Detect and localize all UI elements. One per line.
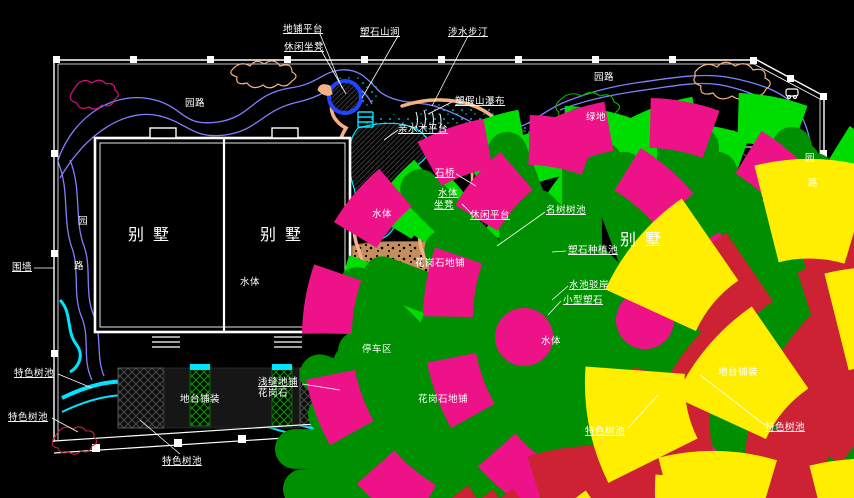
label-leisure-platform: 休闲平台	[470, 209, 510, 221]
label-paving-platform: 地铺平台	[283, 23, 323, 35]
rock-outlines-part	[70, 80, 118, 109]
boundary-markers-part	[750, 57, 757, 64]
boundary-markers-part	[438, 56, 445, 63]
label-water-body-pond: 水体	[372, 208, 392, 220]
label-joint-paving: 浅缝地铺	[258, 376, 298, 388]
label-path-vertical-right-2: 路	[808, 177, 818, 189]
buildings-part	[272, 128, 298, 138]
label-famous-tree-pool: 名树树池	[546, 204, 586, 216]
boundary-markers-part	[361, 56, 368, 63]
label-granite: 花岗石	[258, 387, 288, 399]
label-water-body-right: 水体	[541, 335, 561, 347]
label-pool-revetment: 水池驳岸	[569, 279, 609, 291]
car-symbol-part	[788, 96, 791, 99]
villa-label-1: 别墅	[128, 225, 178, 244]
label-feature-tree-pool-2: 特色树池	[8, 411, 48, 423]
label-green-space: 绿地	[586, 111, 606, 123]
label-feature-tree-pool-5: 特色树池	[765, 421, 805, 433]
boundary-markers-part	[51, 250, 58, 257]
boundary-markers-part	[592, 56, 599, 63]
paved-areas-part	[118, 368, 164, 428]
label-small-rock: 小型塑石	[563, 295, 603, 306]
label-path-vertical-left-1: 园	[78, 216, 88, 227]
label-feature-tree-pool-1: 特色树池	[14, 367, 54, 379]
leader-lines-part	[52, 418, 78, 432]
label-water-body-left: 水体	[240, 276, 260, 288]
label-terrace-paving-left: 地台铺装	[180, 393, 220, 405]
label-water-body-pair: 水体	[438, 187, 458, 199]
trees	[291, 118, 854, 498]
car-symbol-part	[786, 89, 798, 96]
paved-areas-part	[272, 364, 292, 370]
boundary-markers-part	[669, 56, 676, 63]
stream-bands-part	[60, 300, 80, 372]
boundary-markers-part	[51, 150, 58, 157]
car-symbol-part	[794, 96, 797, 99]
label-waterside-deck: 亲水木平台	[398, 123, 448, 135]
label-rockery-waterfall: 塑假山瀑布	[455, 95, 505, 107]
label-garden-path-top-right: 园路	[594, 71, 614, 83]
label-leisure-bench: 休闲坐凳	[284, 41, 324, 53]
boundary-markers-part	[284, 56, 291, 63]
label-path-vertical-left-2: 路	[74, 260, 84, 272]
label-granite-paving-upper: 花岗石地铺	[415, 257, 465, 269]
paved-areas-part	[190, 364, 210, 370]
label-stone-bridge: 石桥	[435, 167, 455, 179]
villa-label-2: 别墅	[260, 225, 310, 244]
villa-left-stairs-part	[274, 332, 302, 347]
label-rock-stream: 塑石山涧	[360, 26, 400, 38]
villa-left-stairs	[152, 332, 302, 347]
platform-ring	[329, 81, 361, 113]
boundary-markers-part	[53, 56, 60, 63]
villa-left-stairs-part	[152, 332, 180, 347]
leader-lines-part	[362, 36, 398, 98]
boundary-markers-part	[515, 56, 522, 63]
label-rock-planting-pool: 塑石种植池	[568, 244, 618, 256]
rock-outlines-part	[231, 61, 296, 88]
boundary-markers-part	[820, 93, 827, 100]
label-wading-steps: 涉水步汀	[448, 26, 488, 38]
boundary-markers-part	[787, 75, 794, 82]
villa-label-3: 别墅	[620, 230, 670, 249]
label-path-vertical-right-1: 园	[805, 153, 815, 164]
buildings-part	[150, 128, 176, 138]
label-bench: 坐凳	[434, 200, 454, 211]
label-parking: 停车区	[362, 343, 392, 355]
boundary-markers-part	[238, 435, 246, 443]
label-terrace-paving-right: 地台铺装	[718, 366, 758, 378]
leader-lines-part	[58, 374, 92, 388]
label-perimeter-wall: 围墙	[12, 261, 32, 273]
car-symbol	[786, 89, 798, 99]
boundary-markers-part	[207, 56, 214, 63]
label-feature-tree-pool-3: 特色树池	[162, 455, 202, 467]
boundary-markers-part	[51, 350, 58, 357]
label-feature-tree-pool-4: 特色树池	[585, 425, 625, 437]
boundary-markers-part	[174, 439, 182, 447]
landscape-plan-svg: 地铺平台 休闲坐凳 塑石山涧 涉水步汀 塑假山瀑布 园路 园路 绿地 亲水木平台…	[0, 0, 854, 498]
cad-canvas: 地铺平台 休闲坐凳 塑石山涧 涉水步汀 塑假山瀑布 园路 园路 绿地 亲水木平台…	[0, 0, 854, 498]
rock-outlines-part	[694, 62, 770, 99]
boundary-markers-part	[130, 56, 137, 63]
label-garden-path-top-left: 园路	[185, 97, 205, 109]
label-granite-paving-lower: 花岗石地铺	[418, 393, 468, 405]
